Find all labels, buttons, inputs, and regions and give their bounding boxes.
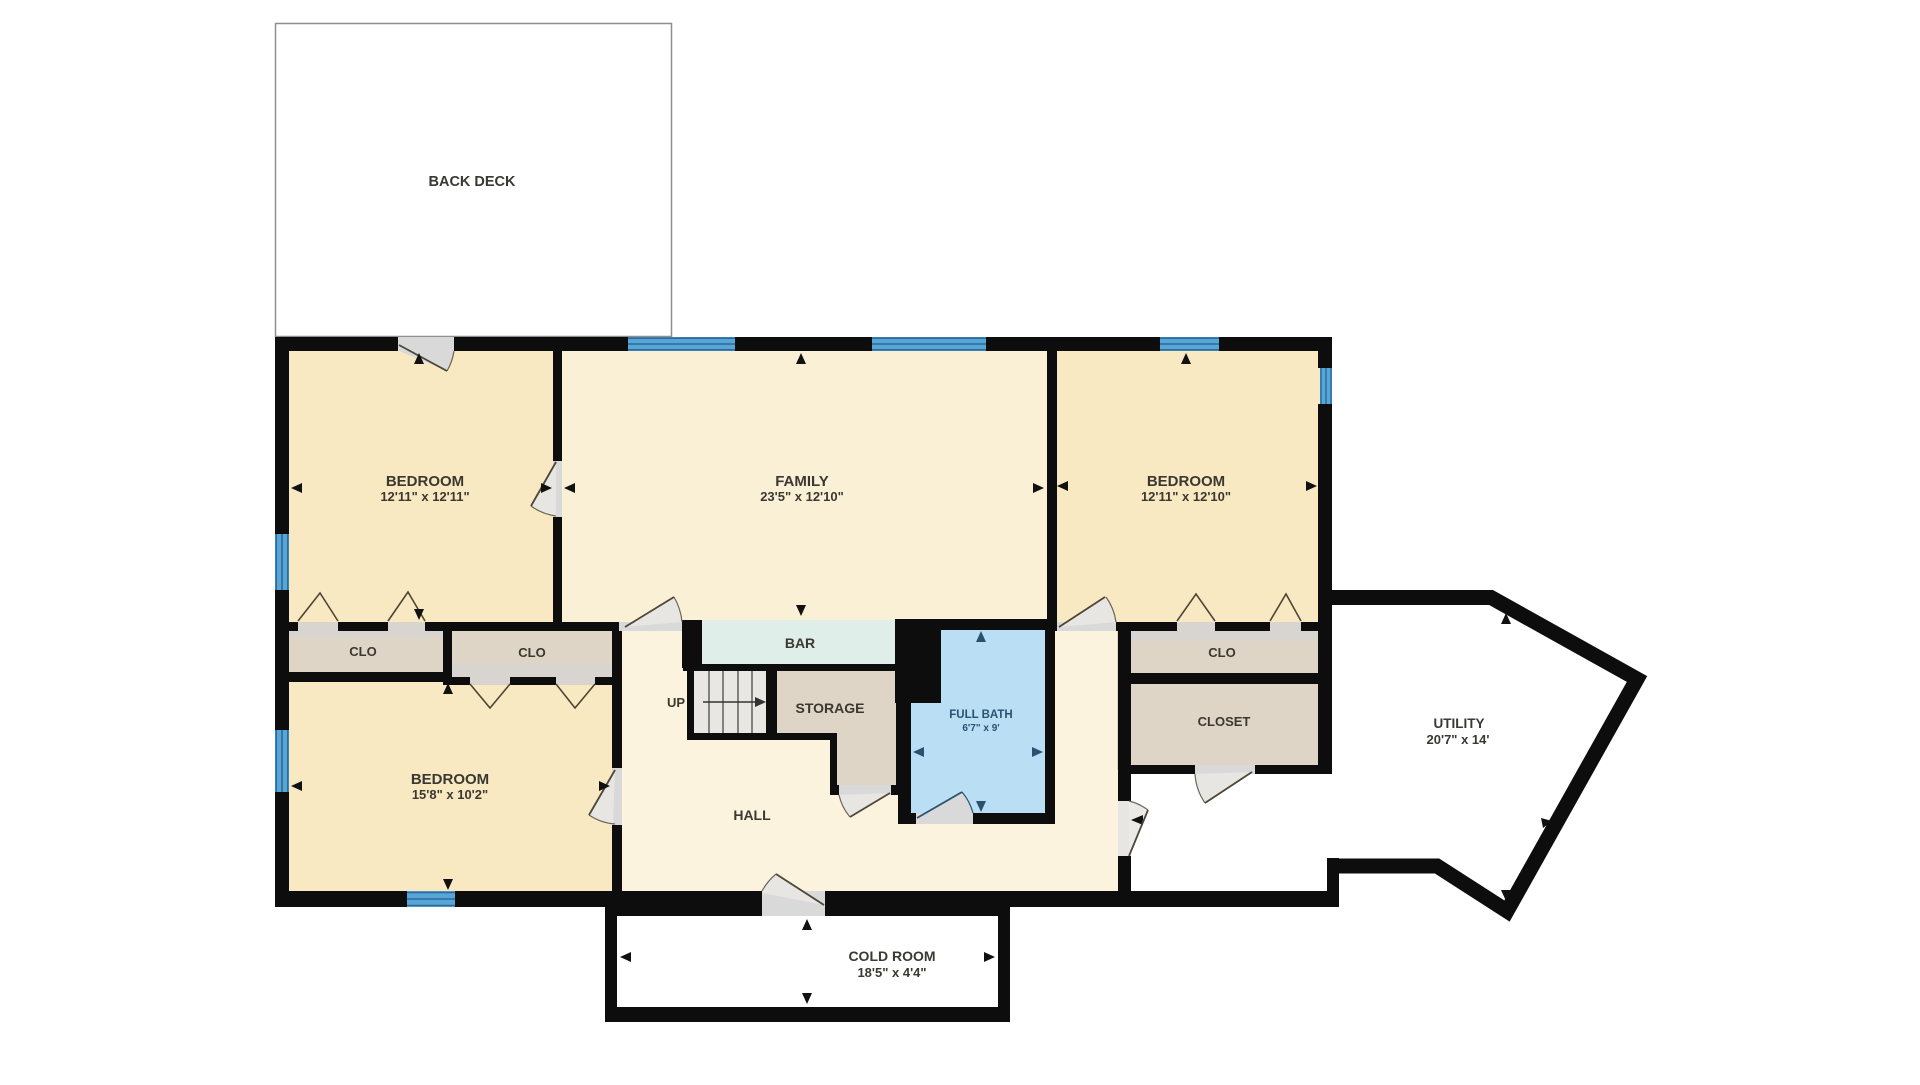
svg-text:20'7" x 14': 20'7" x 14' bbox=[1427, 732, 1490, 747]
svg-text:UP: UP bbox=[667, 695, 685, 710]
svg-text:18'5" x 4'4": 18'5" x 4'4" bbox=[857, 965, 926, 980]
svg-text:CLO: CLO bbox=[518, 645, 545, 660]
svg-text:BEDROOM: BEDROOM bbox=[411, 771, 489, 788]
svg-text:15'8" x 10'2": 15'8" x 10'2" bbox=[412, 787, 488, 802]
svg-text:UTILITY: UTILITY bbox=[1434, 716, 1485, 731]
svg-text:CLO: CLO bbox=[1208, 645, 1235, 660]
svg-text:BAR: BAR bbox=[785, 635, 815, 651]
svg-text:COLD ROOM: COLD ROOM bbox=[848, 948, 935, 964]
svg-text:HALL: HALL bbox=[733, 807, 771, 823]
svg-text:6'7" x 9': 6'7" x 9' bbox=[962, 723, 999, 734]
svg-text:FULL BATH: FULL BATH bbox=[949, 709, 1012, 721]
svg-text:CLOSET: CLOSET bbox=[1198, 714, 1251, 729]
svg-text:FAMILY: FAMILY bbox=[775, 473, 829, 490]
svg-text:BEDROOM: BEDROOM bbox=[386, 473, 464, 490]
svg-text:STORAGE: STORAGE bbox=[796, 700, 865, 716]
svg-text:BACK DECK: BACK DECK bbox=[429, 174, 517, 190]
svg-text:12'11" x 12'10": 12'11" x 12'10" bbox=[1141, 489, 1231, 504]
svg-text:BEDROOM: BEDROOM bbox=[1147, 473, 1225, 490]
svg-text:CLO: CLO bbox=[349, 644, 376, 659]
svg-text:12'11" x 12'11": 12'11" x 12'11" bbox=[380, 489, 469, 504]
svg-text:23'5" x 12'10": 23'5" x 12'10" bbox=[760, 489, 844, 504]
